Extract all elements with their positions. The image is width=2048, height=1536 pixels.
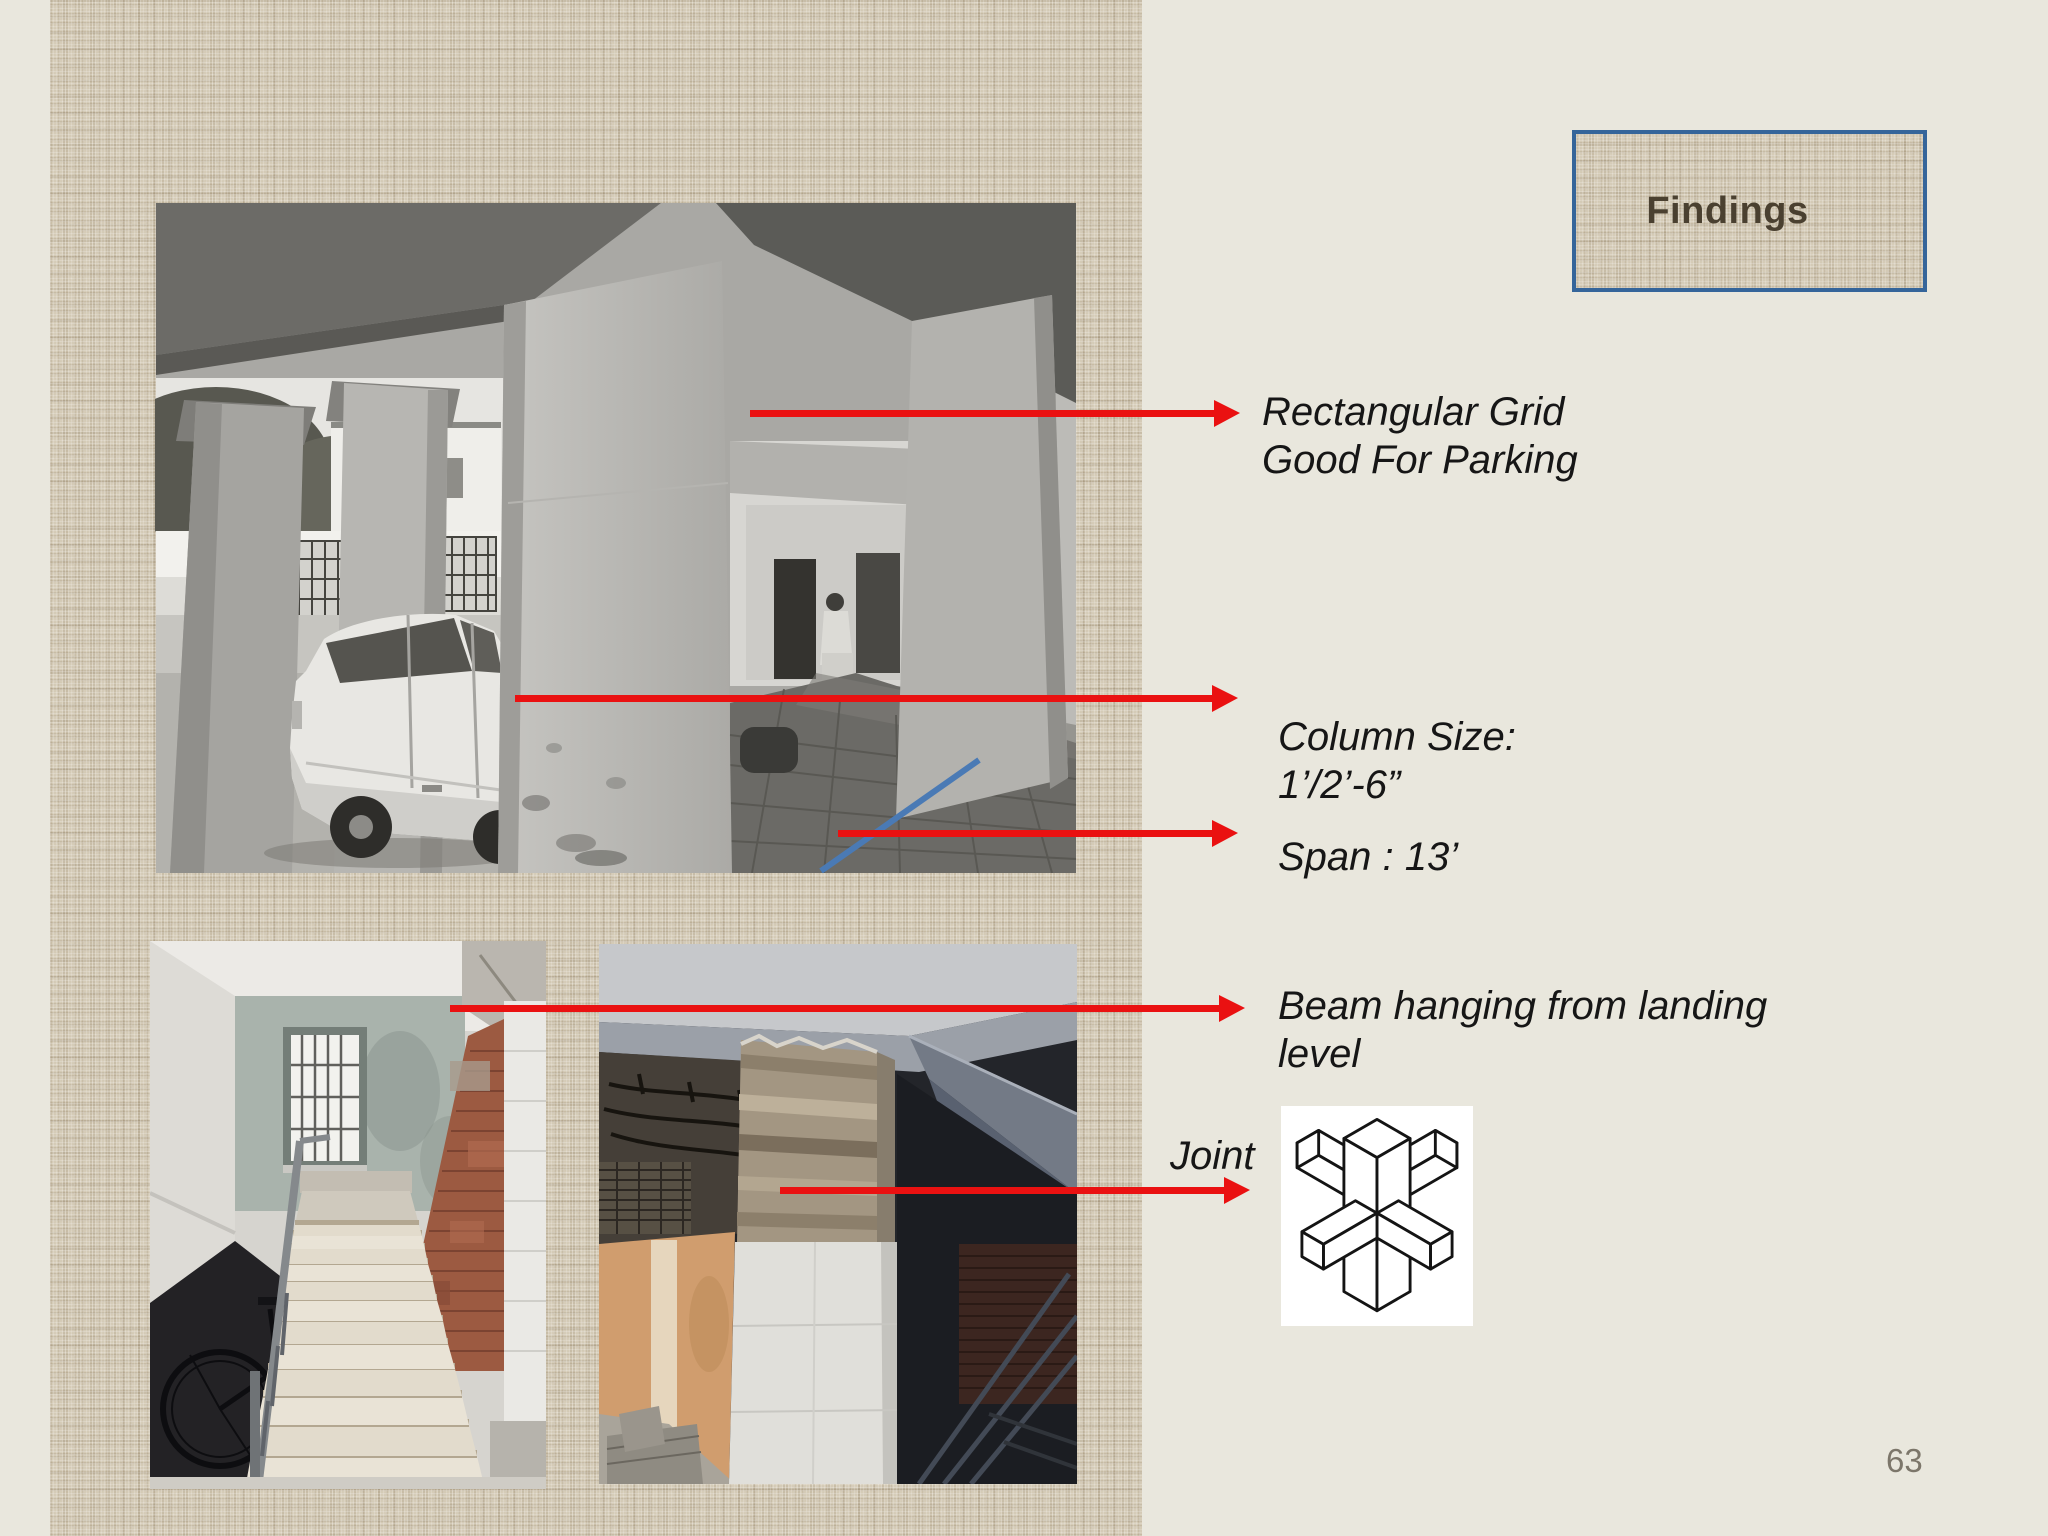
stone-clad-column [737,1036,895,1242]
arrow-head-icon [1212,685,1238,712]
beam-label-line1: Beam hanging from landing [1278,982,1767,1030]
span-arrow [838,820,1238,847]
column-size-label-line2: 1’/2’-6” [1278,761,1516,809]
beam-joint-photo [599,944,1077,1484]
span-label: Span : 13’ [1278,833,1458,881]
beam-label-line2: level [1278,1030,1767,1078]
rect-grid-label: Rectangular Grid Good For Parking [1262,388,1578,484]
page-number: 63 [1886,1442,1923,1480]
arrow-head-icon [1219,995,1245,1022]
rect-grid-label-line1: Rectangular Grid [1262,388,1578,436]
findings-title-box: Findings [1572,130,1927,292]
arrow-head-icon [1214,400,1240,427]
central-column [498,261,732,873]
column-size-arrow [515,685,1238,712]
column-size-label-line1: Column Size: [1278,713,1516,761]
slide: Findings Rectangular Grid Good For Parki… [0,0,2048,1536]
beam-label: Beam hanging from landing level [1278,982,1767,1078]
joint-diagram [1281,1106,1473,1326]
beam-arrow [450,995,1245,1022]
column-size-label: Column Size: 1’/2’-6” [1278,713,1516,809]
joint-diagram-box [1281,1106,1473,1326]
joint-arrow [780,1177,1250,1204]
arrow-head-icon [1212,820,1238,847]
findings-title: Findings [1646,190,1808,233]
joint-label: Joint [1170,1132,1255,1180]
rect-grid-arrow [750,400,1240,427]
tiled-column-base [729,1242,897,1484]
arrow-head-icon [1224,1177,1250,1204]
rect-grid-label-line2: Good For Parking [1262,436,1578,484]
parking-garage-photo [155,203,1077,873]
staircase-photo [150,941,546,1489]
